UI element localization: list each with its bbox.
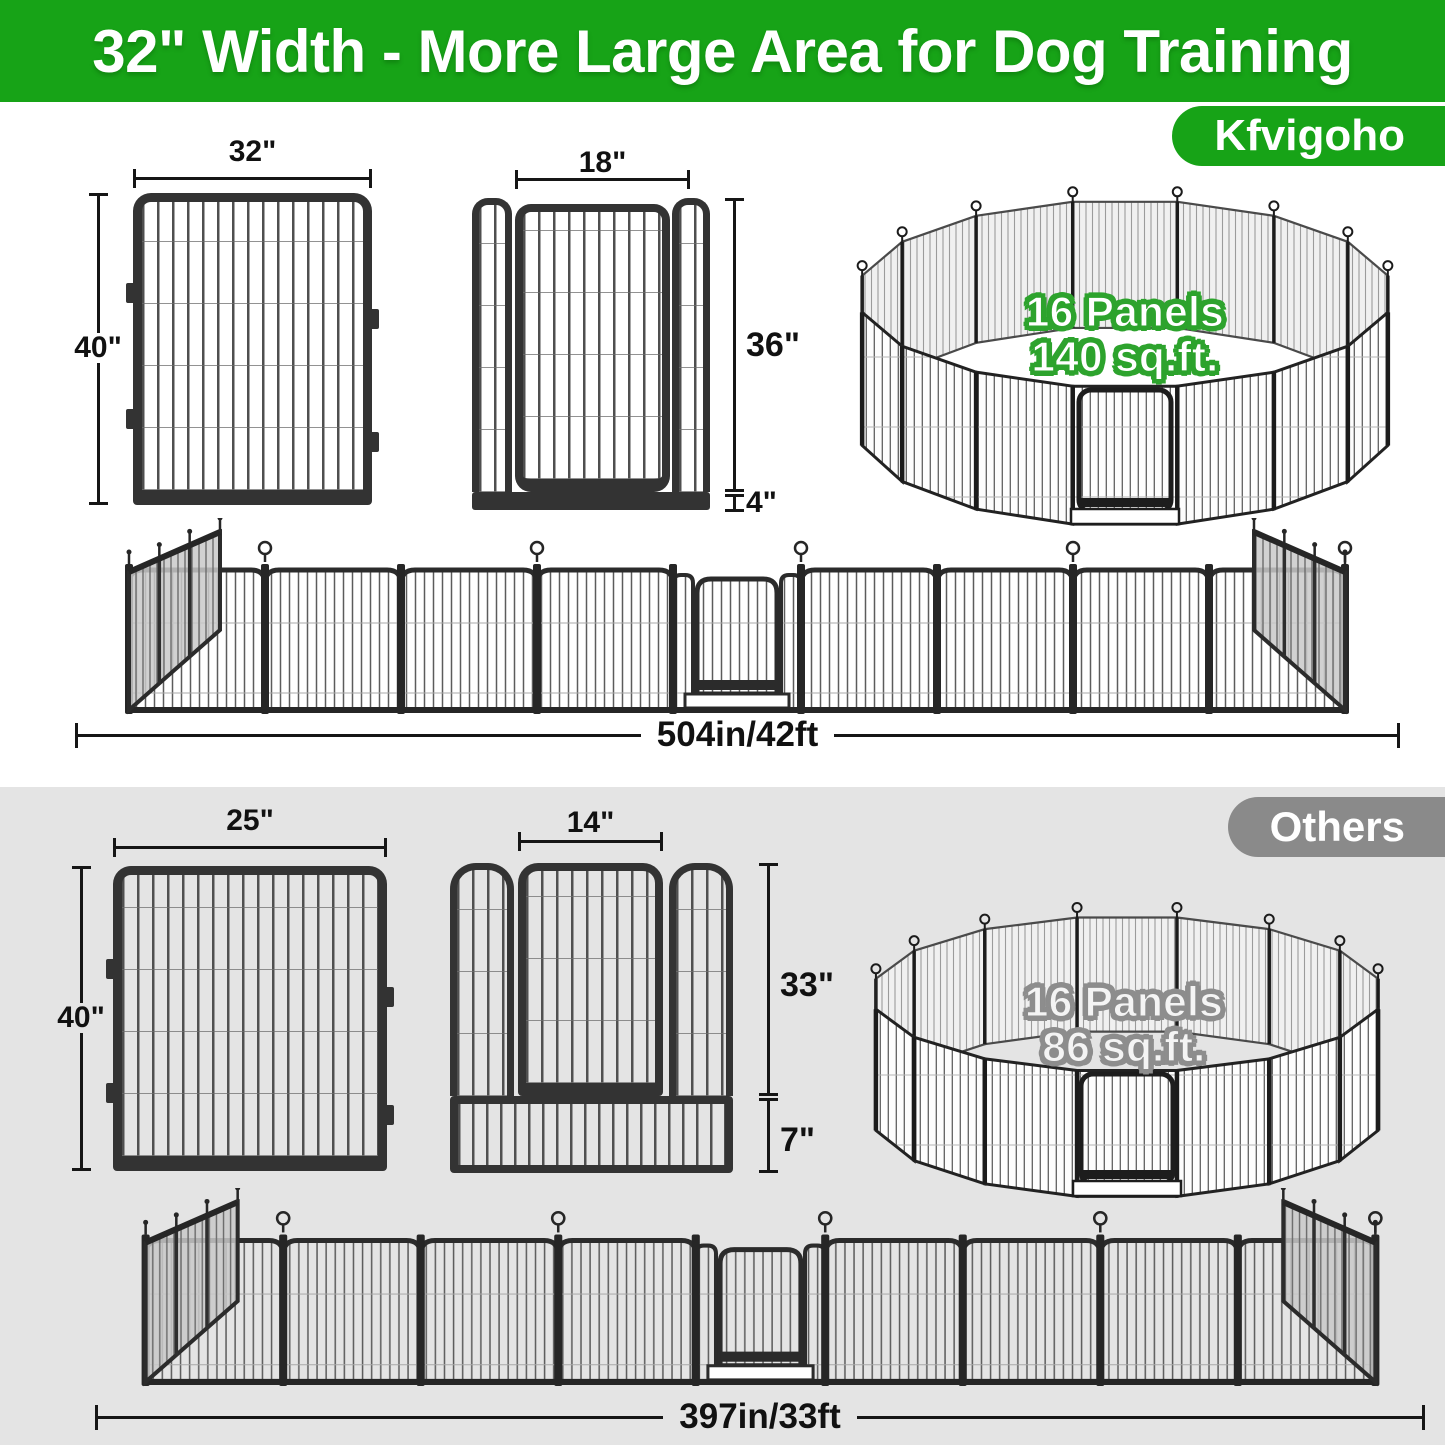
total-length-label: 504in/42ft — [657, 715, 818, 755]
side-section — [472, 198, 512, 492]
kfvigoho-playpen-illustration: 16 Panels 140 sq.ft. — [825, 182, 1425, 554]
others-playpen-illustration: 16 Panels 86 sq.ft. — [855, 900, 1445, 1212]
kfvigoho-single-panel-diagram: 32" 40" — [75, 135, 380, 515]
panel-height-dimension-label: 40" — [62, 333, 134, 363]
hinge-tab-icon — [126, 283, 135, 303]
fence-row-illustration — [72, 518, 1402, 718]
door-width-dimension-line — [518, 840, 663, 843]
door-height-dimension-label: 36" — [746, 328, 800, 362]
pen-caption: 16 Panels 140 sq.ft. — [825, 290, 1425, 379]
dimension-line — [95, 1416, 663, 1419]
hinge-tab-icon — [385, 987, 394, 1007]
pen-caption: 16 Panels 86 sq.ft. — [855, 980, 1393, 1069]
bottom-height-dimension-label: 7" — [780, 1123, 815, 1157]
kfvigoho-fence-row — [72, 518, 1402, 718]
brand-badge-kfvigoho: Kfvigoho — [1172, 106, 1445, 166]
side-section — [672, 198, 710, 492]
door-width-dimension-label: 18" — [515, 148, 690, 178]
header-banner: 32" Width - More Large Area for Dog Trai… — [0, 0, 1445, 102]
others-door-panel-diagram: 14" 33" 7" — [450, 808, 825, 1183]
pen-caption-line2: 140 sq.ft. — [825, 335, 1425, 380]
pen-caption-line2: 86 sq.ft. — [855, 1025, 1393, 1070]
kfvigoho-door-panel-diagram: 18" 36" 4" — [472, 148, 817, 528]
side-section — [450, 863, 514, 1096]
hinge-tab-icon — [370, 309, 379, 329]
door-width-dimension-line — [515, 178, 690, 181]
dimension-line — [75, 734, 641, 737]
hinge-tab-icon — [385, 1105, 394, 1125]
door-height-dimension-line — [733, 198, 736, 492]
door-height-dimension-label: 33" — [780, 968, 834, 1002]
pen-caption-line1: 16 Panels — [855, 980, 1393, 1025]
fence-row-illustration — [88, 1188, 1433, 1390]
bottom-height-dimension-line — [767, 1098, 770, 1173]
bottom-bar — [472, 492, 710, 510]
hinge-tab-icon — [106, 959, 115, 979]
panel-drawing — [133, 193, 372, 505]
hinge-tab-icon — [370, 432, 379, 452]
panel-width-dimension-line — [133, 177, 372, 180]
panel-width-dimension-label: 25" — [113, 806, 387, 836]
others-fence-row — [88, 1188, 1433, 1390]
door-width-dimension-label: 14" — [518, 808, 663, 838]
door-drawing — [518, 863, 663, 1096]
total-length-label: 397in/33ft — [679, 1397, 840, 1437]
bottom-height-dimension-label: 4" — [746, 488, 777, 518]
hinge-tab-icon — [106, 1083, 115, 1103]
product-infographic: 32" Width - More Large Area for Dog Trai… — [0, 0, 1445, 1445]
door-height-dimension-line — [767, 863, 770, 1096]
hinge-tab-icon — [126, 409, 135, 429]
dimension-line — [834, 734, 1400, 737]
panel-width-dimension-label: 32" — [133, 137, 372, 167]
door-drawing — [515, 204, 670, 492]
bottom-mesh-section — [450, 1096, 733, 1173]
dimension-line — [857, 1416, 1425, 1419]
bottom-height-dimension-line — [733, 494, 736, 512]
side-section — [669, 863, 733, 1096]
panel-width-dimension-line — [113, 846, 387, 849]
pen-caption-line1: 16 Panels — [825, 290, 1425, 335]
panel-drawing — [113, 866, 387, 1171]
door-panel-drawing — [472, 198, 710, 510]
others-total-length-dimension: 397in/33ft — [95, 1392, 1425, 1442]
banner-title: 32" Width - More Large Area for Dog Trai… — [92, 17, 1352, 86]
kfvigoho-total-length-dimension: 504in/42ft — [75, 710, 1400, 760]
door-panel-drawing — [450, 863, 733, 1173]
others-single-panel-diagram: 25" 40" — [58, 798, 403, 1183]
brand-badge-others: Others — [1228, 797, 1445, 857]
panel-height-dimension-label: 40" — [45, 1003, 117, 1033]
